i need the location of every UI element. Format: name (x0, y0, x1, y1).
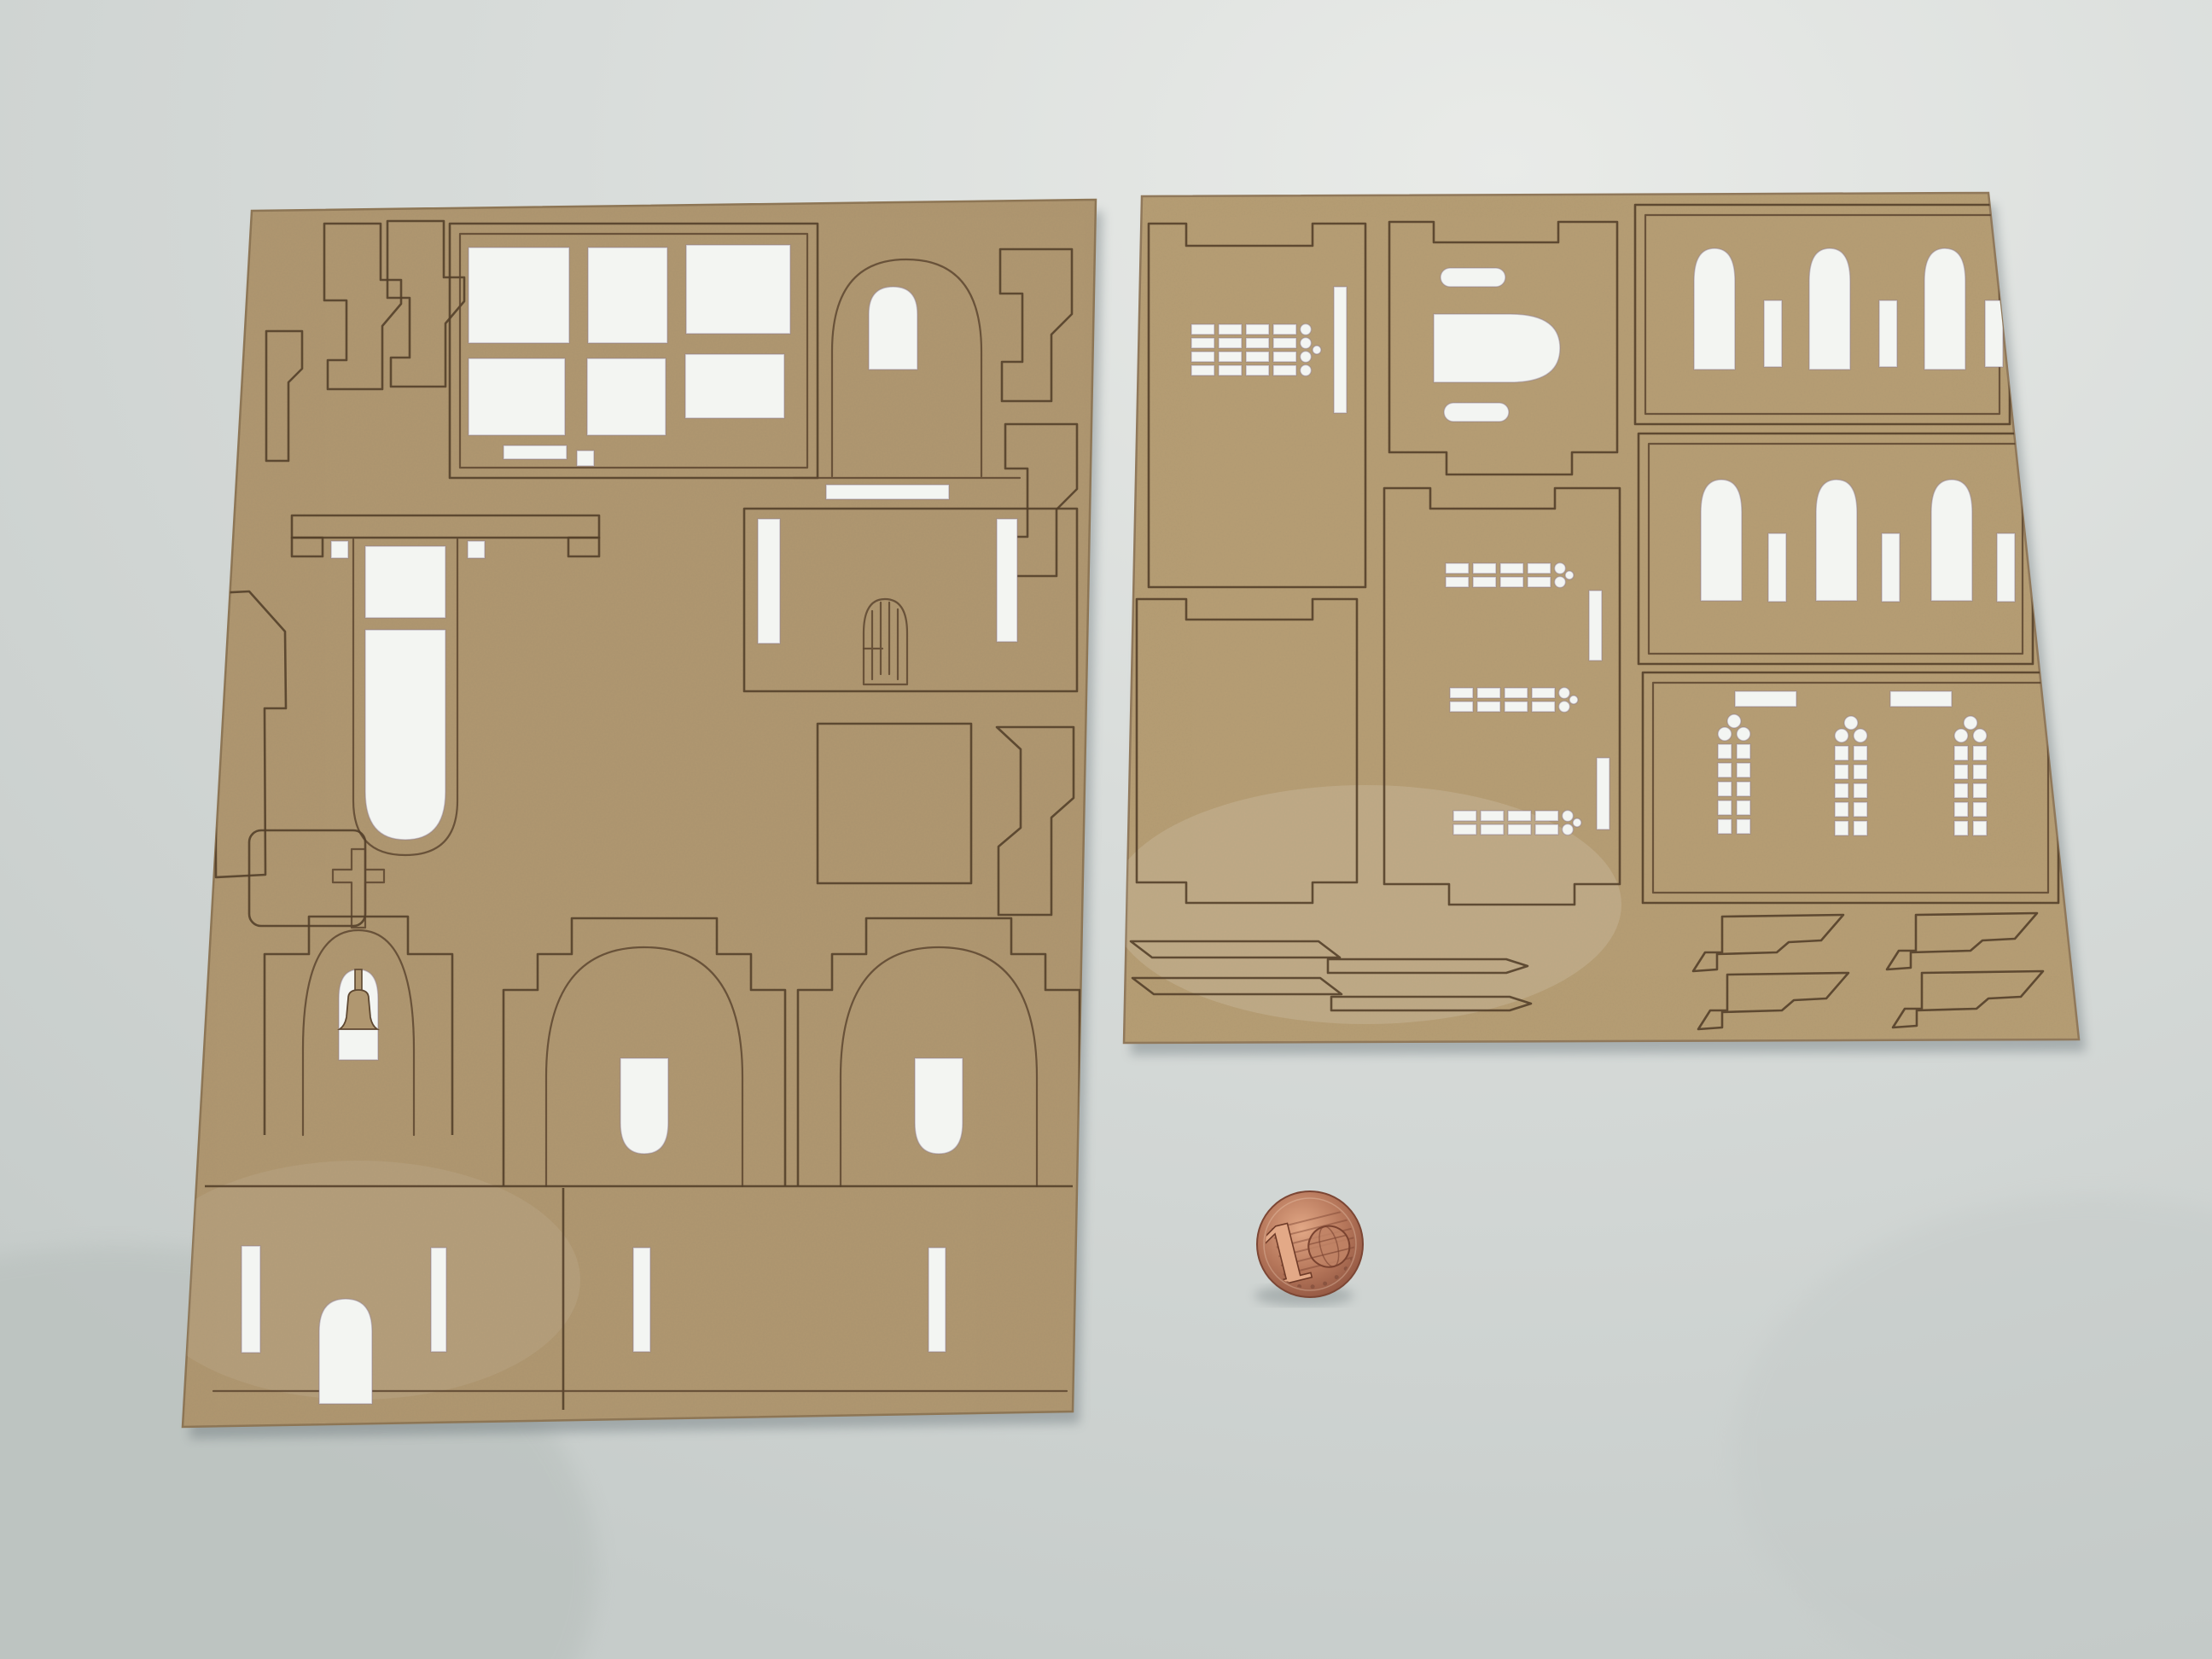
small-arch-window-cutout (869, 287, 917, 370)
slot-cutout (1334, 287, 1347, 413)
right-mdf-sheet (1109, 171, 2116, 1075)
slit-window-cutout (242, 1246, 260, 1353)
arched-doorway-cutout (319, 1299, 372, 1404)
photo-laser-cut-sheets: 1 (0, 0, 2212, 1659)
slit-window-cutout (633, 1248, 650, 1352)
slot-cutout (826, 485, 949, 499)
slit-window-cutout (928, 1248, 946, 1352)
sideways-arch-cutout (1434, 314, 1560, 382)
left-mdf-sheet (137, 171, 1135, 1468)
round-bottom-pane-cutout (365, 630, 445, 840)
slit-window-cutout (431, 1248, 446, 1352)
window-pane-cutout (365, 546, 445, 618)
